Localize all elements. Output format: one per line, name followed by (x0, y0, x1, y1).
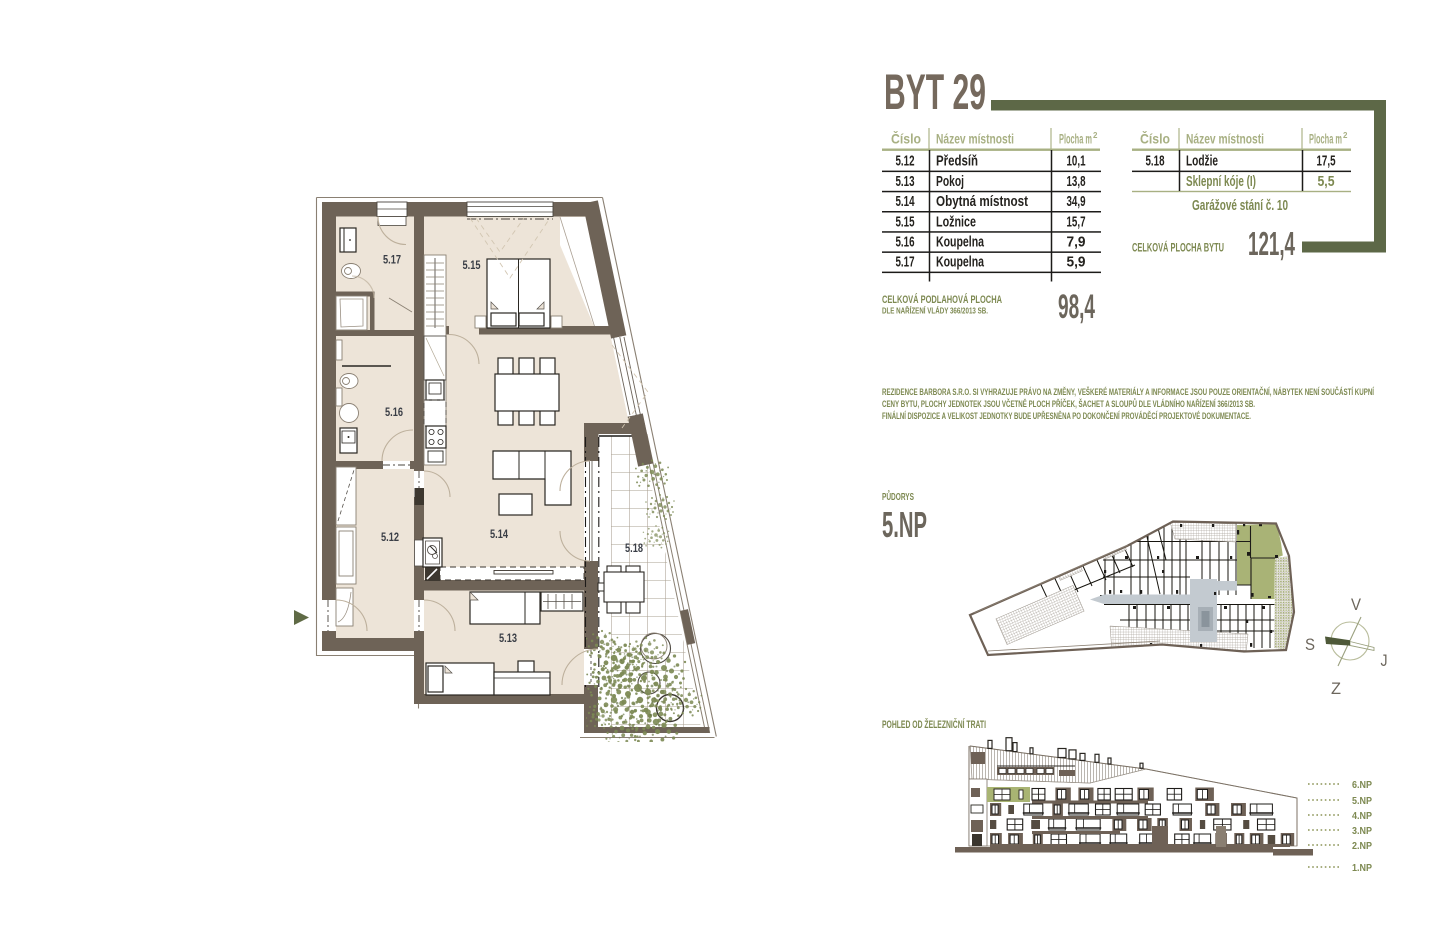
svg-text:Název místnosti: Název místnosti (1186, 132, 1264, 147)
svg-text:Předsíň: Předsíň (936, 154, 978, 170)
svg-text:5.16: 5.16 (896, 235, 915, 251)
svg-text:17,5: 17,5 (1317, 154, 1336, 170)
svg-text:Koupelna: Koupelna (936, 255, 985, 271)
svg-text:2: 2 (1093, 131, 1098, 140)
svg-text:Pokoj: Pokoj (936, 174, 964, 190)
svg-text:Obytná místnost: Obytná místnost (936, 194, 1028, 210)
svg-text:7,9: 7,9 (1067, 235, 1086, 251)
svg-text:5.17: 5.17 (896, 255, 915, 271)
svg-text:5.13: 5.13 (896, 174, 915, 190)
svg-text:Z: Z (1331, 679, 1341, 698)
svg-text:5.13: 5.13 (499, 633, 517, 645)
svg-text:PŮDORYS: PŮDORYS (882, 489, 914, 503)
svg-text:5,5: 5,5 (1318, 174, 1335, 190)
svg-text:Sklepní kóje (I): Sklepní kóje (I) (1186, 174, 1256, 190)
svg-text:15,7: 15,7 (1067, 214, 1086, 230)
svg-text:Garážové stání č. 10: Garážové stání č. 10 (1192, 198, 1288, 214)
svg-text:5.15: 5.15 (463, 260, 481, 272)
svg-text:POHLED OD ŽELEZNIČNÍ TRATI: POHLED OD ŽELEZNIČNÍ TRATI (882, 718, 986, 731)
svg-text:4.NP: 4.NP (1352, 810, 1372, 822)
svg-text:REZIDENCE BARBORA S.R.O. SI VY: REZIDENCE BARBORA S.R.O. SI VYHRAZUJE PR… (882, 386, 1374, 398)
svg-text:5.15: 5.15 (896, 214, 915, 230)
svg-text:13,8: 13,8 (1067, 174, 1086, 190)
svg-text:34,9: 34,9 (1067, 194, 1086, 210)
svg-text:Plocha m: Plocha m (1059, 132, 1092, 147)
svg-text:1.NP: 1.NP (1352, 862, 1372, 874)
svg-text:5.14: 5.14 (896, 194, 915, 210)
svg-text:CENY BYTU, PLOCHY JEDNOTEK JSO: CENY BYTU, PLOCHY JEDNOTEK JSOU VČETNĚ P… (882, 398, 1255, 410)
svg-text:CELKOVÁ PODLAHOVÁ PLOCHA: CELKOVÁ PODLAHOVÁ PLOCHA (882, 293, 1002, 306)
svg-text:5.12: 5.12 (381, 532, 399, 544)
svg-text:98,4: 98,4 (1058, 288, 1095, 326)
svg-text:5.NP: 5.NP (882, 504, 927, 545)
svg-text:Číslo: Číslo (891, 132, 921, 147)
svg-text:BYT 29: BYT 29 (884, 64, 986, 120)
svg-text:2.NP: 2.NP (1352, 840, 1372, 852)
svg-text:5.17: 5.17 (383, 255, 401, 267)
svg-text:5.NP: 5.NP (1352, 795, 1372, 807)
svg-text:5.12: 5.12 (896, 154, 915, 170)
svg-text:2: 2 (1343, 131, 1348, 140)
svg-text:J: J (1381, 651, 1388, 670)
svg-text:FINÁLNÍ DISPOZICE A VELIKOST J: FINÁLNÍ DISPOZICE A VELIKOST JEDNOTKY BU… (882, 410, 1251, 422)
svg-text:Ložnice: Ložnice (936, 214, 976, 230)
svg-text:CELKOVÁ PLOCHA BYTU: CELKOVÁ PLOCHA BYTU (1132, 242, 1224, 255)
svg-text:V: V (1351, 595, 1362, 614)
svg-text:3.NP: 3.NP (1352, 825, 1372, 837)
svg-text:Lodžie: Lodžie (1186, 154, 1218, 170)
svg-text:10,1: 10,1 (1067, 154, 1086, 170)
svg-text:5.16: 5.16 (385, 407, 403, 419)
svg-text:5.18: 5.18 (1146, 154, 1165, 170)
svg-text:5.18: 5.18 (625, 543, 643, 555)
svg-text:6.NP: 6.NP (1352, 779, 1372, 791)
svg-text:5.14: 5.14 (490, 529, 508, 541)
svg-text:Číslo: Číslo (1140, 132, 1170, 147)
svg-text:Plocha m: Plocha m (1309, 132, 1342, 147)
svg-text:121,4: 121,4 (1248, 225, 1295, 262)
svg-text:S: S (1305, 635, 1315, 654)
svg-text:Název místnosti: Název místnosti (936, 132, 1014, 147)
svg-text:Koupelna: Koupelna (936, 235, 985, 251)
svg-text:DLE NAŘÍZENÍ VLÁDY 366/2013 SB: DLE NAŘÍZENÍ VLÁDY 366/2013 SB. (882, 305, 988, 316)
svg-text:5,9: 5,9 (1067, 255, 1086, 271)
